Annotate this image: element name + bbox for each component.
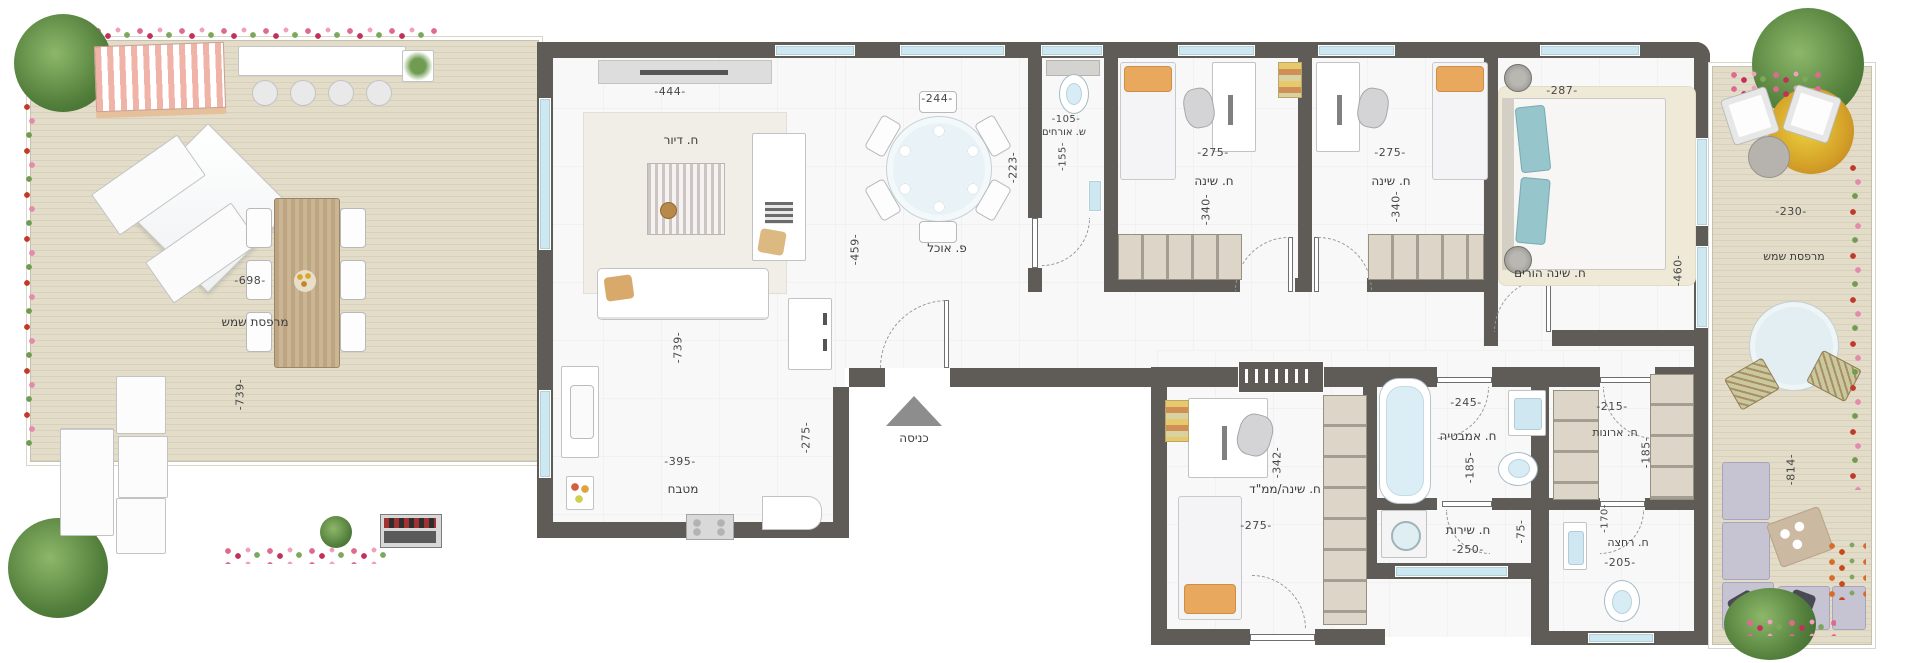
wardrobe-door-leaf	[1600, 377, 1655, 383]
master-right-dim: -460-	[1672, 245, 1685, 297]
bathroom-vanity	[1508, 390, 1546, 436]
bbq-body	[384, 531, 436, 543]
fridge-handle	[823, 313, 827, 325]
bathroom-height-dim: -185-	[1464, 442, 1477, 494]
guest-wc-height-dim: -155-	[1058, 131, 1069, 183]
kitchen-island	[762, 496, 822, 530]
wardrobe-closet	[1650, 374, 1694, 500]
sink-basin	[1514, 398, 1542, 430]
kitchen-counter	[561, 366, 599, 458]
kitchen-width-dim: -395-	[650, 455, 710, 468]
tv-screen	[640, 70, 728, 75]
dining-right-dim: -223-	[1007, 142, 1020, 194]
side-table-round	[1748, 136, 1790, 178]
side-table	[660, 202, 677, 219]
terrace-left-width-dim: -698-	[215, 274, 285, 287]
shower-window	[1588, 633, 1654, 643]
bar-stool	[252, 80, 278, 106]
wall-bath-service-divider	[1492, 498, 1531, 510]
dining-label: פ. אוכל	[917, 241, 977, 255]
service-door-leaf	[1442, 501, 1492, 507]
fridge-handle	[823, 339, 827, 351]
sofa-pillow	[603, 274, 634, 302]
corner-sofa-seat	[1722, 462, 1770, 520]
living-height-dim: -739-	[672, 320, 685, 376]
toilet-bowl	[1508, 459, 1530, 478]
living-terrace-window	[539, 98, 551, 250]
master-top-dim: -287-	[1532, 84, 1592, 97]
wall-mamad-bottom	[1315, 629, 1385, 645]
orange-flower-bush	[1826, 540, 1866, 600]
dining-top-dim: -244-	[907, 92, 967, 105]
kitchen-terrace-sliding-door	[539, 390, 551, 478]
wall-entry	[849, 368, 885, 387]
kitchen-sink	[570, 385, 594, 439]
bookshelf-unit	[752, 133, 806, 261]
striped-carpet	[647, 163, 725, 235]
wall-wc-left-lower	[1028, 268, 1042, 292]
dining-left-dim: -459-	[849, 224, 862, 276]
wall-master-bottom	[1552, 330, 1710, 346]
flower-bed-left-edge	[22, 55, 38, 453]
bedroom2-window	[1318, 45, 1395, 56]
kitchen-right-dim: -275-	[800, 412, 813, 464]
shower-height-dim: -170-	[1600, 497, 1611, 541]
bedroom2-height-dim: -340-	[1390, 181, 1403, 233]
potted-plant	[320, 516, 352, 548]
monitor	[1222, 426, 1227, 460]
terrace-left-label: מרפסת שמש	[200, 315, 310, 329]
table-centerpiece	[294, 270, 316, 292]
closet	[1368, 234, 1484, 280]
wall-hall-top	[1367, 278, 1484, 292]
master-side-window	[1696, 138, 1708, 226]
closet	[1118, 234, 1242, 280]
corner-sofa-seat	[1722, 522, 1770, 580]
cushion	[757, 228, 787, 256]
wall-top	[537, 42, 1710, 58]
sink-basin	[1568, 531, 1584, 565]
wall-hall-top	[1104, 278, 1240, 292]
bed-pillow-orange	[1124, 66, 1172, 92]
terrace-left-height-dim: -739-	[234, 367, 247, 423]
mamad-label: ח. שינה/ממ"ד	[1240, 482, 1330, 496]
terrace-chair	[340, 208, 366, 248]
bed-pillow-teal	[1515, 177, 1551, 245]
bathtub-basin	[1386, 386, 1424, 496]
bbq-grill	[380, 514, 442, 548]
entrance-arrow-icon	[886, 396, 942, 426]
bedroom1-window	[1178, 45, 1255, 56]
terrace-right-height-dim: -814-	[1785, 444, 1798, 496]
flower-bed-top-edge	[92, 26, 437, 41]
kitchen-label: מטבח	[655, 482, 711, 496]
wall-master-bottom	[1484, 330, 1496, 346]
outdoor-armchair	[116, 376, 166, 434]
flower-bed-bottom	[1744, 618, 1836, 636]
mamad-height-dim: -342-	[1271, 437, 1284, 489]
mamad-width-dim: -275-	[1226, 519, 1286, 532]
entrance-label: כניסה	[886, 431, 942, 445]
master-label: ח. שינה הורים	[1504, 266, 1596, 280]
flower-bed-right-edge	[1848, 160, 1866, 490]
wall-hall-top	[1295, 278, 1312, 292]
monitor	[1337, 95, 1342, 125]
master-top-window	[1540, 45, 1640, 56]
wall-mamad-bottom	[1151, 629, 1250, 645]
wall-cluster-top	[1492, 367, 1600, 387]
bar-stool	[366, 80, 392, 106]
guest-wc-door-leaf	[1032, 218, 1038, 268]
mamad-door-leaf	[1250, 634, 1315, 641]
terrace-right-width-dim: -230-	[1763, 205, 1819, 218]
shower-width-dim: -205-	[1592, 556, 1648, 569]
shower-vanity	[1563, 522, 1587, 570]
bar-stool	[328, 80, 354, 106]
living-top-dim: -444-	[640, 85, 700, 98]
toilet-bowl	[1612, 590, 1632, 614]
terrace-right-label: מרפסת שמש	[1748, 250, 1840, 263]
guest-wc-window	[1041, 45, 1103, 56]
books	[765, 202, 793, 224]
mamad-blast-window	[1238, 361, 1324, 393]
monitor	[1228, 95, 1233, 125]
washer-door	[1391, 521, 1421, 551]
bbq-grate	[384, 518, 436, 528]
wardrobe-height-dim: -185-	[1640, 429, 1653, 477]
guest-wc-width-dim: -105-	[1038, 114, 1094, 125]
living-label: ח. דיור	[651, 133, 711, 147]
bedroom1-height-dim: -340-	[1200, 184, 1213, 236]
dining-chair	[919, 221, 957, 243]
outdoor-sofa	[60, 428, 114, 536]
fruit-tray	[566, 476, 594, 510]
bathroom-width-dim: -245-	[1438, 396, 1494, 409]
bedroom1-label: ח. שינה	[1186, 174, 1242, 188]
service-window	[1395, 566, 1508, 577]
wall-wc-left	[1028, 58, 1042, 218]
service-label: ח. שירות	[1436, 523, 1500, 537]
service-height-dim: -75-	[1515, 512, 1528, 552]
planter-box	[402, 50, 434, 82]
bathroom-door-leaf	[1437, 377, 1492, 383]
flower-bed-bottom-edge	[222, 546, 392, 564]
terrace-chair	[246, 208, 272, 248]
shelf-unit	[1165, 400, 1189, 442]
bathtub	[1379, 378, 1431, 504]
service-width-dim: -250-	[1438, 543, 1498, 556]
guest-wc-sink	[1088, 180, 1102, 212]
bar-counter	[238, 46, 406, 76]
wall-wc-bed1-divider	[1104, 42, 1118, 292]
wall-entry	[950, 368, 1151, 387]
nightstand-lamp	[1504, 64, 1532, 92]
bedroom1-width-dim: -275-	[1185, 146, 1241, 159]
bedroom2-width-dim: -275-	[1362, 146, 1418, 159]
wardrobe-width-dim: -215-	[1584, 400, 1640, 413]
bed-pillow-orange	[1184, 584, 1236, 614]
floor-plan: -698- מרפסת שמש -739-	[0, 0, 1920, 663]
shower-label: ח. רחצה	[1598, 536, 1658, 549]
bed-headboard	[1502, 98, 1514, 270]
bar-stool	[290, 80, 316, 106]
shelf-unit	[1278, 62, 1302, 98]
bed-pillow-orange	[1436, 66, 1484, 92]
striped-daybed	[94, 42, 226, 112]
outdoor-armchair	[118, 436, 168, 498]
wall-right	[1694, 42, 1710, 645]
outdoor-armchair	[116, 498, 166, 554]
closet	[1323, 395, 1367, 625]
cooktop	[686, 514, 734, 540]
wall-entry-vertical	[833, 387, 849, 538]
terrace-chair	[340, 312, 366, 352]
tall-cabinet-fridge	[788, 298, 832, 370]
living-top-window	[775, 45, 855, 56]
washing-machine	[1381, 510, 1427, 558]
desk	[1212, 62, 1256, 152]
guest-toilet-bowl	[1066, 83, 1082, 105]
dining-window	[900, 45, 1005, 56]
terrace-chair	[340, 260, 366, 300]
master-terrace-sliding-door	[1696, 246, 1708, 328]
mamad-window-slats	[1245, 369, 1315, 383]
